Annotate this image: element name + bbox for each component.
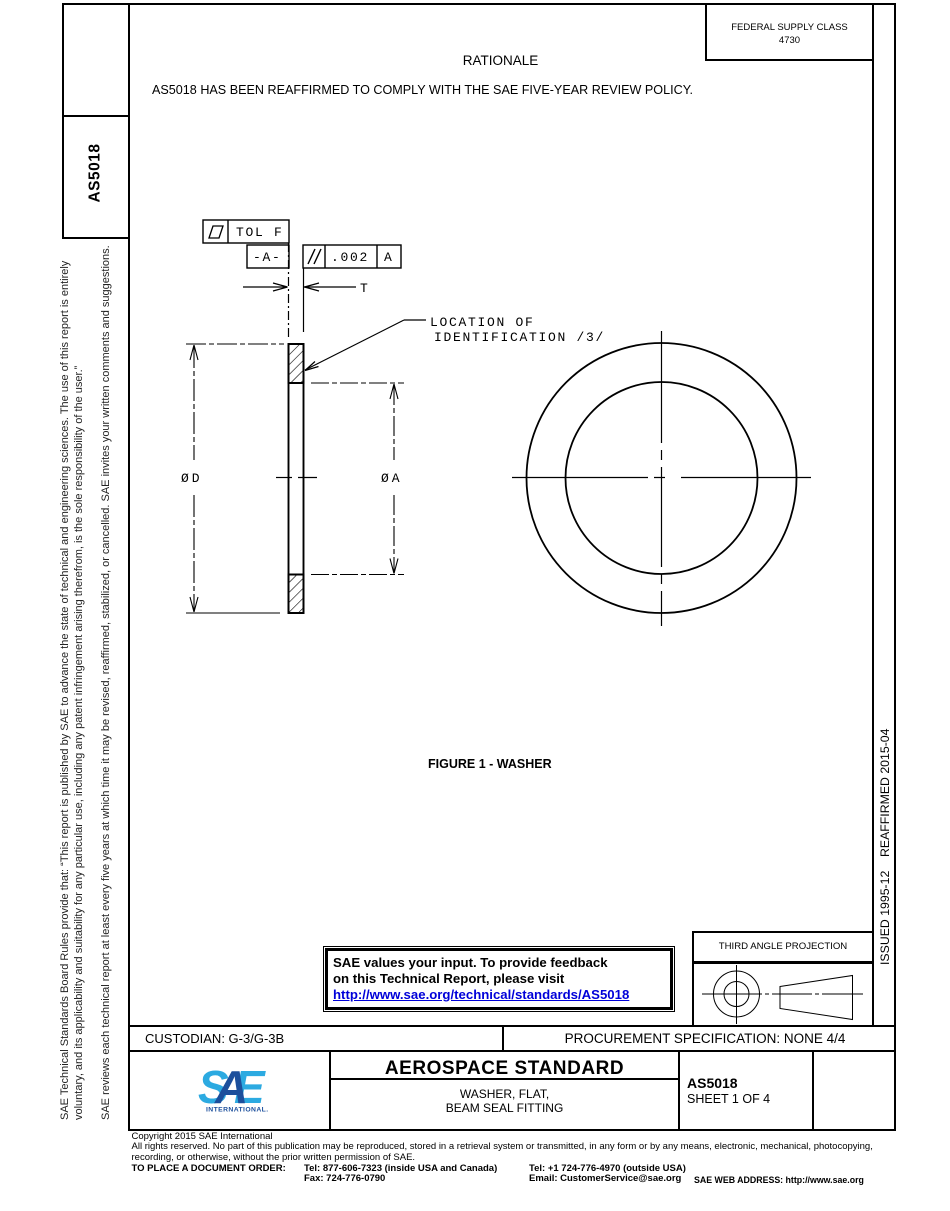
svg-text:T: T [360, 281, 370, 296]
svg-text:.002: .002 [331, 250, 369, 265]
svg-text:IDENTIFICATION /3/: IDENTIFICATION /3/ [434, 330, 605, 345]
svg-text:ØA: ØA [381, 471, 403, 486]
svg-text:-A-: -A- [253, 250, 282, 265]
svg-text:A: A [384, 250, 394, 265]
svg-text:LOCATION OF: LOCATION OF [430, 315, 535, 330]
svg-text:ØD: ØD [181, 471, 203, 486]
svg-text:TOL F: TOL F [236, 225, 284, 240]
